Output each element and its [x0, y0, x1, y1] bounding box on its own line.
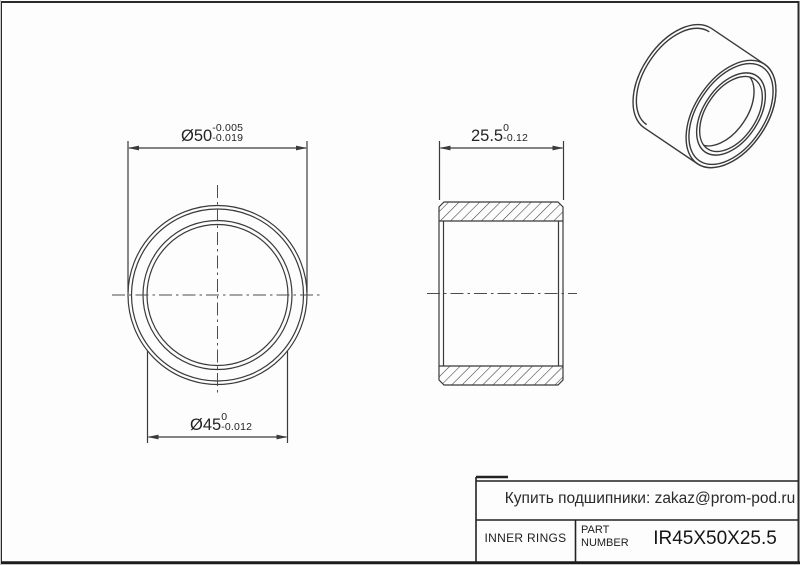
width-tolerances: 0-0.12 — [503, 124, 528, 143]
bore-diameter-tolerances: 0-0.012 — [221, 413, 252, 432]
isometric-view — [615, 8, 795, 184]
category-label: INNER RINGS — [476, 531, 575, 545]
drawing-linework — [0, 0, 800, 565]
outer-diameter-value: Ø50 — [181, 127, 212, 146]
part-number-value: IR45X50X25.5 — [640, 528, 790, 550]
front-view — [112, 141, 323, 443]
contact-line: Купить подшипники: zakaz@prom-pod.ru — [476, 490, 798, 508]
width-value: 25.5 — [471, 127, 503, 146]
bore-diameter-value: Ø45 — [190, 416, 221, 435]
side-section-view — [427, 141, 577, 385]
outer-diameter-tolerances: -0.005-0.019 — [212, 124, 243, 143]
part-number-label: PART NUMBER — [581, 524, 629, 550]
bore-diameter-label: Ø450-0.012 — [190, 416, 252, 435]
outer-diameter-label: Ø50-0.005-0.019 — [181, 127, 243, 146]
technical-drawing-sheet: Ø50-0.005-0.019 25.50-0.12 Ø450-0.012 Ку… — [0, 0, 800, 565]
top-wall-hatch — [439, 202, 563, 221]
width-label: 25.50-0.12 — [471, 127, 528, 146]
bottom-wall-hatch — [439, 366, 563, 385]
width-dimension — [440, 141, 564, 200]
